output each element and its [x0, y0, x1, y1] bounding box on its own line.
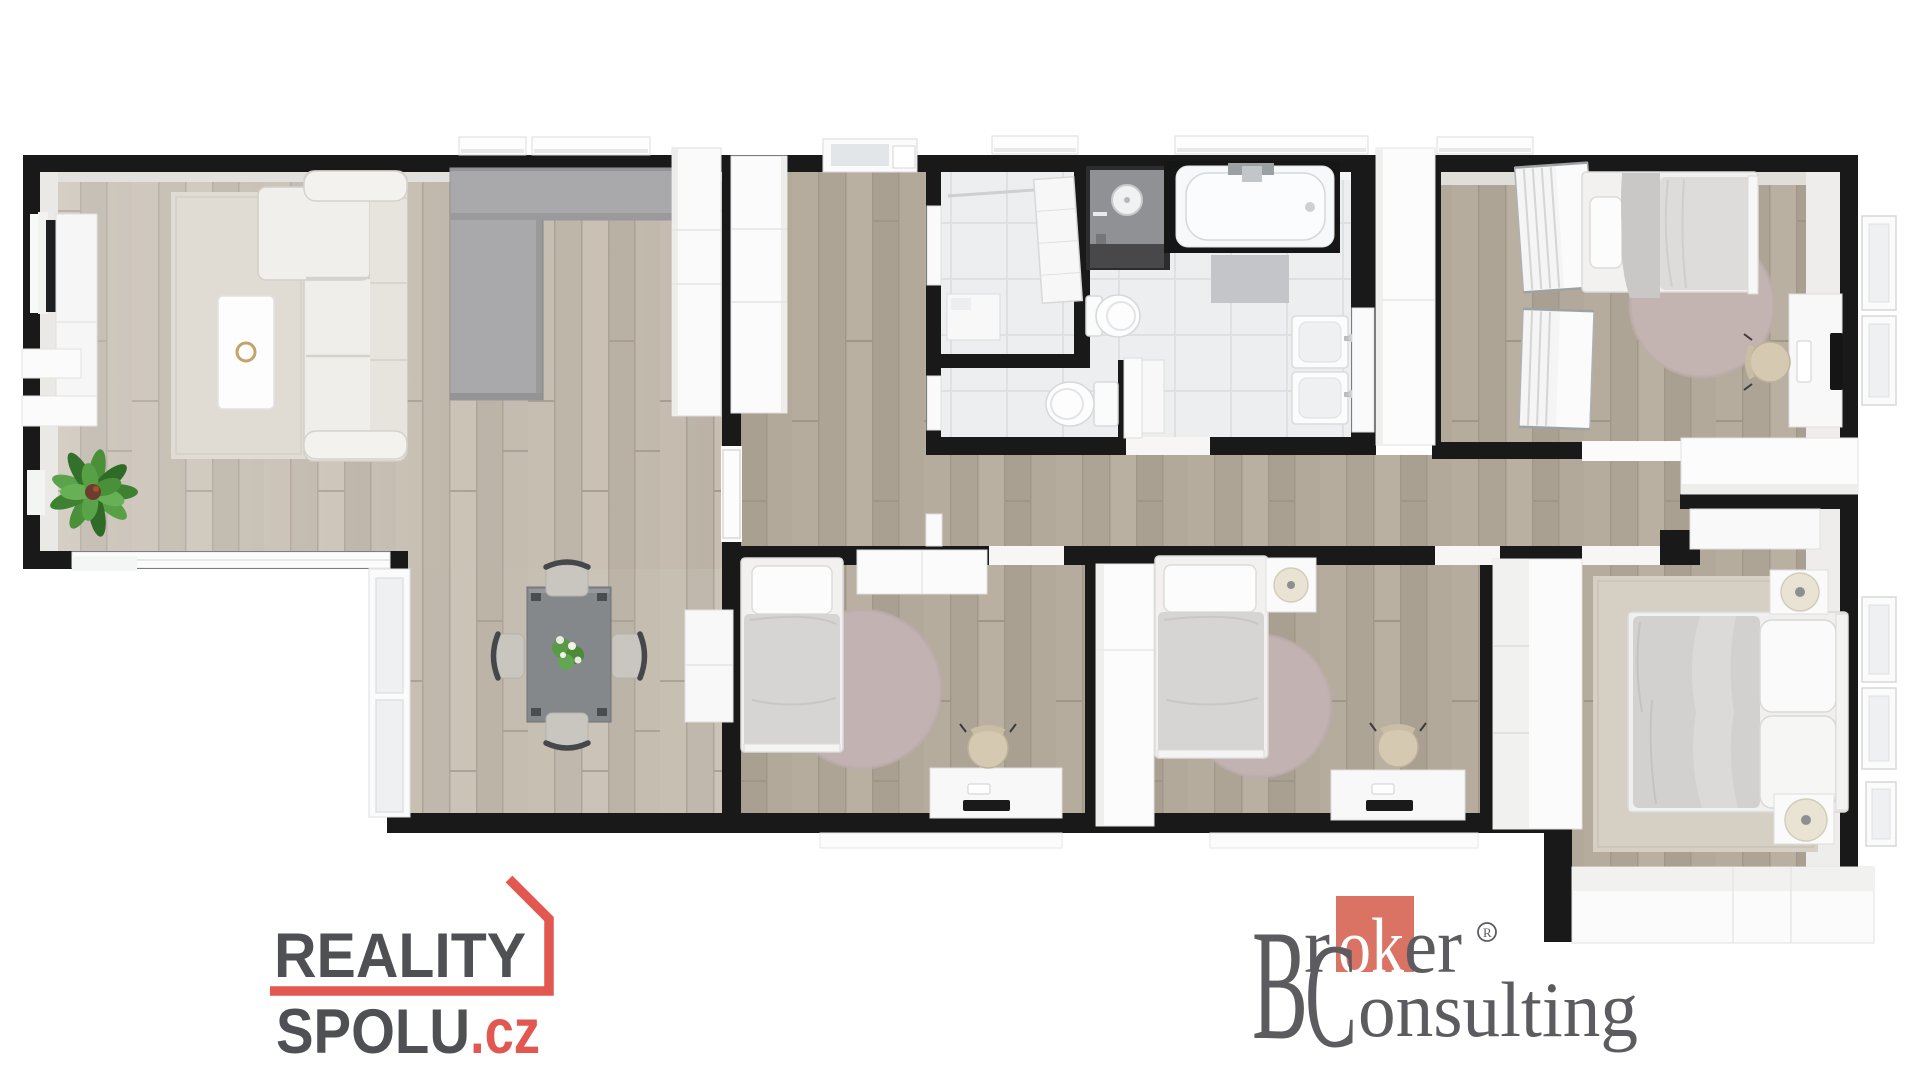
svg-text:C: C: [1305, 913, 1357, 1079]
svg-text:.cz: .cz: [470, 997, 540, 1067]
svg-text:R: R: [1483, 925, 1492, 940]
svg-text:SPOLU: SPOLU: [276, 997, 470, 1067]
svg-text:B: B: [1252, 898, 1308, 1073]
svg-text:onsulting: onsulting: [1358, 966, 1638, 1053]
svg-text:REALITY: REALITY: [274, 921, 526, 991]
